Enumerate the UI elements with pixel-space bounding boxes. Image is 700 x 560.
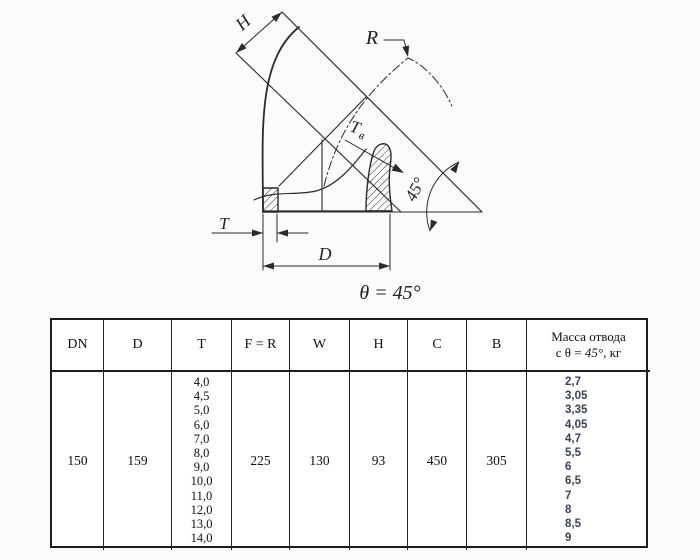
header-cell-t: T: [172, 320, 232, 372]
header-cell-b: B: [467, 320, 527, 372]
label-t-wall: T в: [347, 117, 369, 143]
angle-arrow-upper: [450, 160, 462, 173]
header-cell-h: H: [350, 320, 408, 372]
r-arrow: [402, 46, 411, 58]
header-cell-fr: F = R: [232, 320, 290, 372]
scanned-catalog-page: H R T в 45° T D θ = 45° DN D T F = R W H…: [0, 0, 700, 560]
label-d: D: [318, 244, 332, 264]
dimension-table: DN D T F = R W H C B Масса отвода с θ = …: [50, 318, 648, 548]
twall-arrow: [392, 164, 406, 177]
header-cell-w: W: [290, 320, 350, 372]
cell-c: 450: [408, 372, 467, 550]
cell-h: 93: [350, 372, 408, 550]
cell-d: 159: [104, 372, 172, 550]
cell-t-values: 4,04,55,06,07,08,09,010,011,012,013,014,…: [172, 372, 232, 550]
header-cell-d: D: [104, 320, 172, 372]
t-arrow-right: [277, 230, 288, 237]
left-wall-section: [263, 188, 278, 212]
cell-b: 305: [467, 372, 527, 550]
cell-dn: 150: [52, 372, 104, 550]
d-arrow-left: [263, 263, 274, 270]
cell-mass-values: 2,73,053,354,054,75,566,5788,59: [527, 372, 650, 550]
header-cell-dn: DN: [52, 320, 104, 372]
t-arrow-left: [252, 230, 263, 237]
cell-w: 130: [290, 372, 350, 550]
label-h: H: [231, 10, 256, 35]
label-t: T: [219, 214, 230, 233]
header-cell-mass: Масса отвода с θ = 45°, кг: [527, 320, 650, 372]
elbow-drawing: H R T в 45° T D θ = 45°: [0, 0, 700, 312]
label-r: R: [365, 27, 378, 49]
cell-fr: 225: [232, 372, 290, 550]
label-angle-45: 45°: [401, 174, 429, 204]
d-arrow-right: [379, 263, 390, 270]
header-cell-c: C: [408, 320, 467, 372]
theta-caption: θ = 45°: [359, 282, 420, 304]
